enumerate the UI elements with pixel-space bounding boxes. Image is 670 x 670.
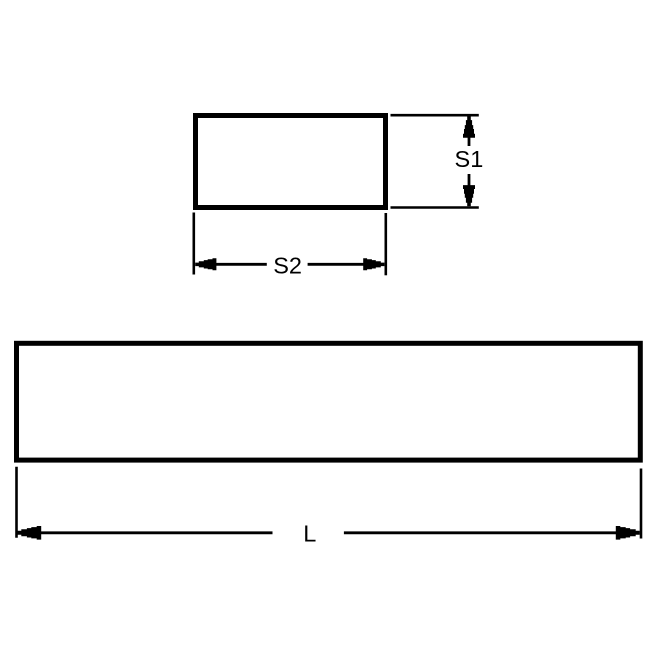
svg-text:S2: S2 <box>273 252 302 278</box>
svg-text:L: L <box>303 520 316 546</box>
svg-text:S1: S1 <box>455 146 484 172</box>
